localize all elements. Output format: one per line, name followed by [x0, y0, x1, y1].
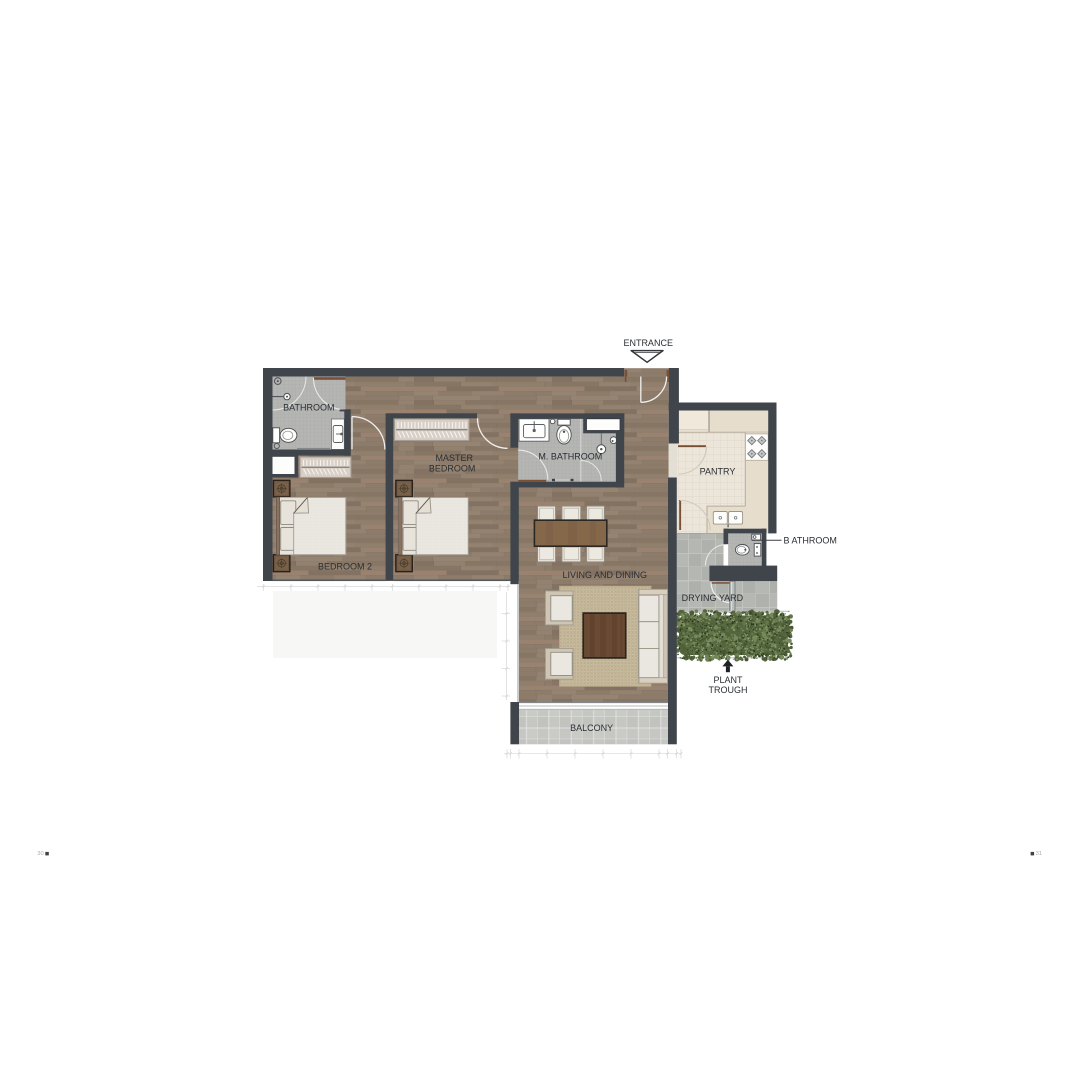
- svg-text:DRYING YARD: DRYING YARD: [682, 593, 744, 603]
- svg-text:MASTER: MASTER: [435, 453, 473, 463]
- svg-text:BEDROOM: BEDROOM: [429, 464, 476, 474]
- svg-text:BALCONY: BALCONY: [570, 723, 613, 733]
- svg-text:BEDROOM 2: BEDROOM 2: [318, 562, 372, 572]
- svg-text:M. BATHROOM: M. BATHROOM: [538, 452, 602, 462]
- svg-text:B ATHROOM: B ATHROOM: [784, 536, 837, 546]
- svg-text:PLANT: PLANT: [713, 675, 743, 685]
- svg-text:ENTRANCE: ENTRANCE: [623, 338, 673, 348]
- svg-text:TROUGH: TROUGH: [709, 685, 748, 695]
- svg-text:PANTRY: PANTRY: [700, 467, 736, 477]
- svg-text:BATHROOM: BATHROOM: [283, 403, 334, 413]
- svg-text:30: 30: [37, 851, 43, 857]
- svg-text:31: 31: [1036, 851, 1042, 857]
- svg-text:LIVING AND DINING: LIVING AND DINING: [563, 570, 648, 580]
